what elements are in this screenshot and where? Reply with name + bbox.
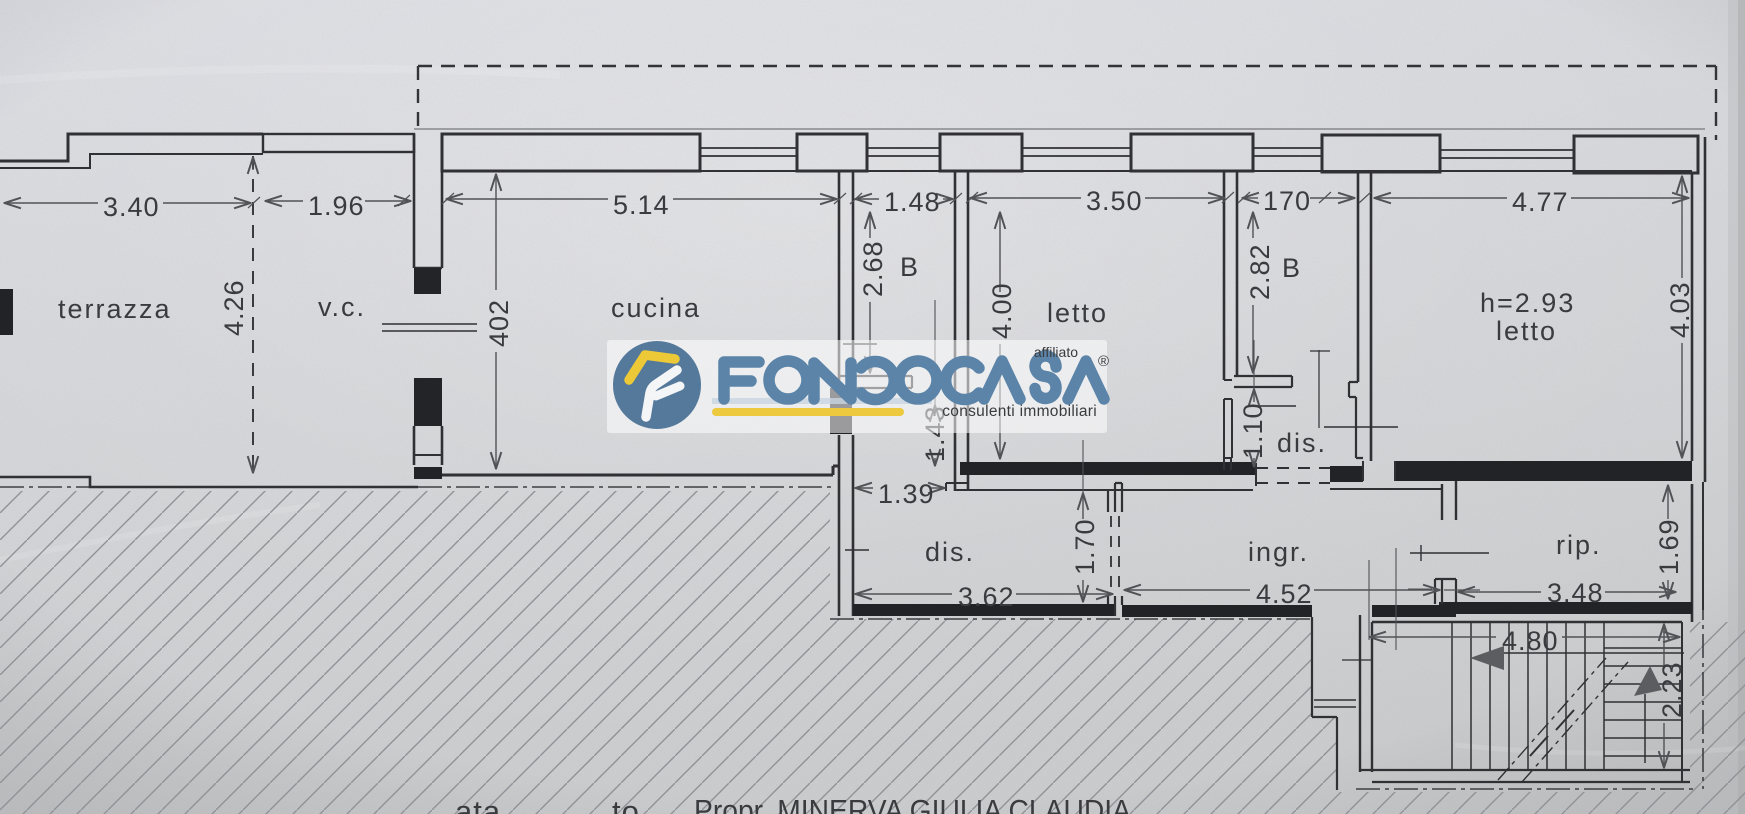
- svg-text:B: B: [1282, 253, 1302, 283]
- svg-text:1.39: 1.39: [878, 479, 935, 509]
- svg-text:h=2.93: h=2.93: [1480, 288, 1575, 318]
- svg-text:1.10: 1.10: [1238, 402, 1268, 459]
- svg-text:ingr.: ingr.: [1248, 537, 1309, 567]
- svg-text:letto: letto: [1047, 298, 1108, 328]
- svg-text:1.70: 1.70: [1070, 518, 1100, 575]
- svg-text:dis.: dis.: [1277, 428, 1327, 458]
- svg-text:5.14: 5.14: [613, 190, 670, 220]
- svg-text:3.62: 3.62: [958, 582, 1015, 612]
- svg-text:dis.: dis.: [925, 537, 975, 567]
- svg-text:terrazza: terrazza: [58, 294, 172, 324]
- svg-text:2.82: 2.82: [1245, 243, 1275, 300]
- svg-text:consulenti immobiliari: consulenti immobiliari: [942, 403, 1097, 420]
- svg-text:2.23: 2.23: [1657, 661, 1687, 718]
- svg-text:®: ®: [1098, 353, 1109, 370]
- svg-text:3.48: 3.48: [1547, 578, 1604, 608]
- svg-text:170: 170: [1263, 186, 1311, 216]
- svg-text:letto: letto: [1496, 316, 1557, 346]
- svg-text:1.48: 1.48: [884, 187, 941, 217]
- svg-text:3.40: 3.40: [103, 192, 160, 222]
- svg-text:to: to: [612, 794, 640, 814]
- svg-text:affiliato: affiliato: [1034, 344, 1078, 360]
- svg-text:4.52: 4.52: [1256, 579, 1313, 609]
- svg-text:4.26: 4.26: [219, 279, 249, 336]
- svg-text:cucina: cucina: [611, 293, 701, 323]
- svg-text:1.96: 1.96: [308, 191, 365, 221]
- svg-text:Propr. MINERVA GIULIA CLAUDIA: Propr. MINERVA GIULIA CLAUDIA: [694, 793, 1131, 814]
- svg-text:402: 402: [484, 299, 514, 347]
- svg-text:3.50: 3.50: [1086, 186, 1143, 216]
- svg-text:B: B: [900, 252, 920, 282]
- svg-text:1.69: 1.69: [1654, 518, 1684, 575]
- svg-text:4.77: 4.77: [1512, 187, 1569, 217]
- svg-text:v.c.: v.c.: [318, 292, 366, 322]
- svg-text:4.00: 4.00: [987, 282, 1017, 339]
- svg-text:rip.: rip.: [1556, 530, 1602, 560]
- svg-text:4.80: 4.80: [1502, 626, 1559, 656]
- svg-text:4.03: 4.03: [1665, 281, 1695, 338]
- svg-text:ata: ata: [455, 794, 501, 814]
- svg-text:2.68: 2.68: [858, 240, 888, 297]
